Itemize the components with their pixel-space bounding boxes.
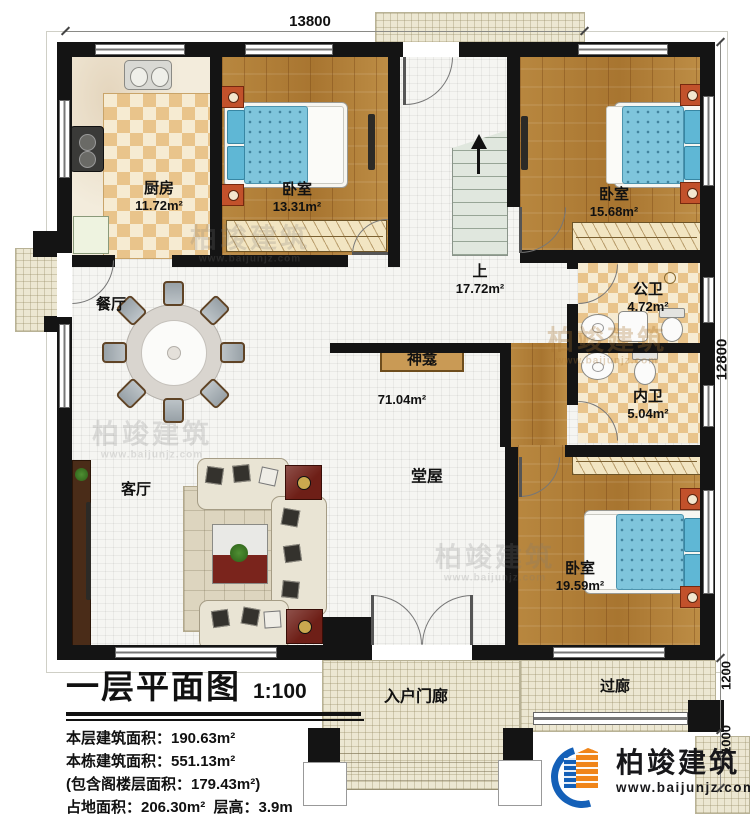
label-bedroom1: 卧室13.31m² (273, 181, 321, 215)
label-public-bath: 公卫4.72m² (627, 281, 668, 315)
window (95, 44, 185, 55)
wall-bedroom1-hall (388, 57, 400, 267)
wall-bath-divider (578, 343, 715, 353)
stove-icon (70, 126, 104, 172)
tv-icon (86, 502, 91, 600)
window (703, 277, 714, 323)
wall-bedroom3-west (505, 447, 518, 645)
bed-mattress (616, 514, 684, 590)
window (703, 490, 714, 594)
window (59, 324, 70, 408)
chair-icon (163, 281, 184, 306)
window (553, 647, 665, 658)
tv-icon (368, 114, 375, 170)
wall-hall-east (500, 343, 511, 447)
wall-kitchen-bedroom1 (210, 57, 222, 255)
window (115, 647, 277, 658)
stat-attic-area: (包含阁楼层面积：179.43m²) (66, 773, 366, 796)
entry-door-leaf (470, 595, 473, 645)
fridge-icon (73, 216, 109, 254)
stat-footprint-height: 占地面积：206.30m² 层高：3.9m (66, 796, 366, 814)
logo-building-orange (576, 748, 598, 788)
pillow (227, 110, 245, 144)
chair-icon (220, 342, 245, 363)
title-underline (66, 719, 364, 721)
bath-cabinet-icon (618, 311, 648, 342)
window (703, 385, 714, 427)
sink-icon (581, 352, 614, 380)
sofa-icon (271, 496, 327, 616)
bedroom3-door-leaf (519, 457, 522, 497)
entry-door-leaf (371, 595, 374, 645)
dimension-line-top (65, 31, 585, 32)
wall-bedroom3-north (565, 445, 715, 457)
logo-building-blue (564, 758, 577, 788)
pillow (227, 146, 245, 180)
tv-icon (521, 116, 528, 170)
dim-corridor-label: 1200 (719, 651, 734, 701)
sofa-icon (199, 600, 289, 650)
bedroom2-door-leaf (519, 207, 522, 253)
wall-bedroom1-south (172, 255, 348, 267)
column-base (498, 760, 542, 806)
nightstand-icon (221, 184, 244, 206)
wardrobe-icon (572, 222, 701, 252)
wall-bedroom2-south (520, 250, 715, 263)
plan-scale: 1:100 (253, 680, 307, 704)
label-bedroom3: 卧室19.59m² (556, 560, 604, 594)
back-door-leaf (403, 57, 406, 105)
wall-hall-bedroom2 (507, 57, 520, 207)
window (578, 44, 668, 55)
side-door-opening (57, 253, 72, 317)
wall-bath-west (567, 263, 578, 269)
company-logo: 柏竣建筑 www.baijunjz.com (550, 742, 750, 800)
company-url: www.baijunjz.com (616, 780, 750, 795)
label-inner-bath: 内卫5.04m² (627, 388, 668, 422)
wall-south (323, 645, 372, 660)
label-living: 客厅 (121, 481, 151, 499)
kitchen-sink-icon (124, 60, 172, 90)
bed-sheet (302, 106, 344, 184)
window (59, 100, 70, 178)
bed-mattress (622, 106, 684, 184)
hallway-floor (510, 343, 567, 457)
company-name: 柏竣建筑 (616, 747, 750, 779)
label-stair-hall: 上17.72m² (456, 263, 504, 297)
kitchen-rug (103, 93, 214, 259)
label-kitchen: 厨房11.72m² (135, 180, 183, 214)
toilet-icon (661, 317, 683, 342)
plant-icon (75, 468, 88, 481)
end-table-icon (286, 609, 323, 644)
porch-column (503, 728, 533, 760)
chair-icon (163, 398, 184, 423)
nightstand-icon (221, 86, 244, 108)
stair-up-arrow-icon (471, 126, 487, 149)
window (703, 96, 714, 186)
label-main-hall: 堂屋 (411, 467, 443, 486)
window (245, 44, 333, 55)
end-table-icon (285, 465, 322, 500)
chair-icon (102, 342, 127, 363)
wall-bath-west (567, 304, 578, 405)
dim-right-label: 12800 (714, 328, 731, 392)
sink-icon (581, 314, 615, 341)
bed-mattress (244, 106, 308, 184)
label-bedroom2: 卧室15.68m² (590, 186, 638, 220)
title-block: 一层平面图 1:100 本层建筑面积：190.63m² 本栋建筑面积：551.1… (66, 660, 366, 814)
toilet-icon (634, 359, 656, 385)
wall-shrine (330, 343, 510, 353)
back-door-opening (403, 42, 459, 57)
plan-title: 一层平面图 (66, 660, 241, 708)
dim-top-label: 13800 (275, 13, 345, 30)
label-entry-porch: 入户门廊 (384, 687, 448, 706)
label-corridor: 过廊 (600, 678, 630, 696)
stat-building-area: 本栋建筑面积：551.13m² (66, 750, 366, 773)
table-center (167, 346, 181, 360)
label-dining: 餐厅 (96, 296, 126, 314)
bedroom1-door-leaf (352, 252, 388, 255)
floor-plan-page: 神龛 柏竣建筑www.baijunjz.c (0, 0, 750, 814)
plant-icon (230, 544, 248, 562)
label-hall-area: 71.04m² (378, 392, 426, 408)
stat-floor-area: 本层建筑面积：190.63m² (66, 727, 366, 750)
logo-icon (550, 742, 608, 800)
entry-door-opening (372, 645, 472, 660)
wall-entry-jog (323, 617, 372, 645)
corridor-window (533, 712, 688, 725)
